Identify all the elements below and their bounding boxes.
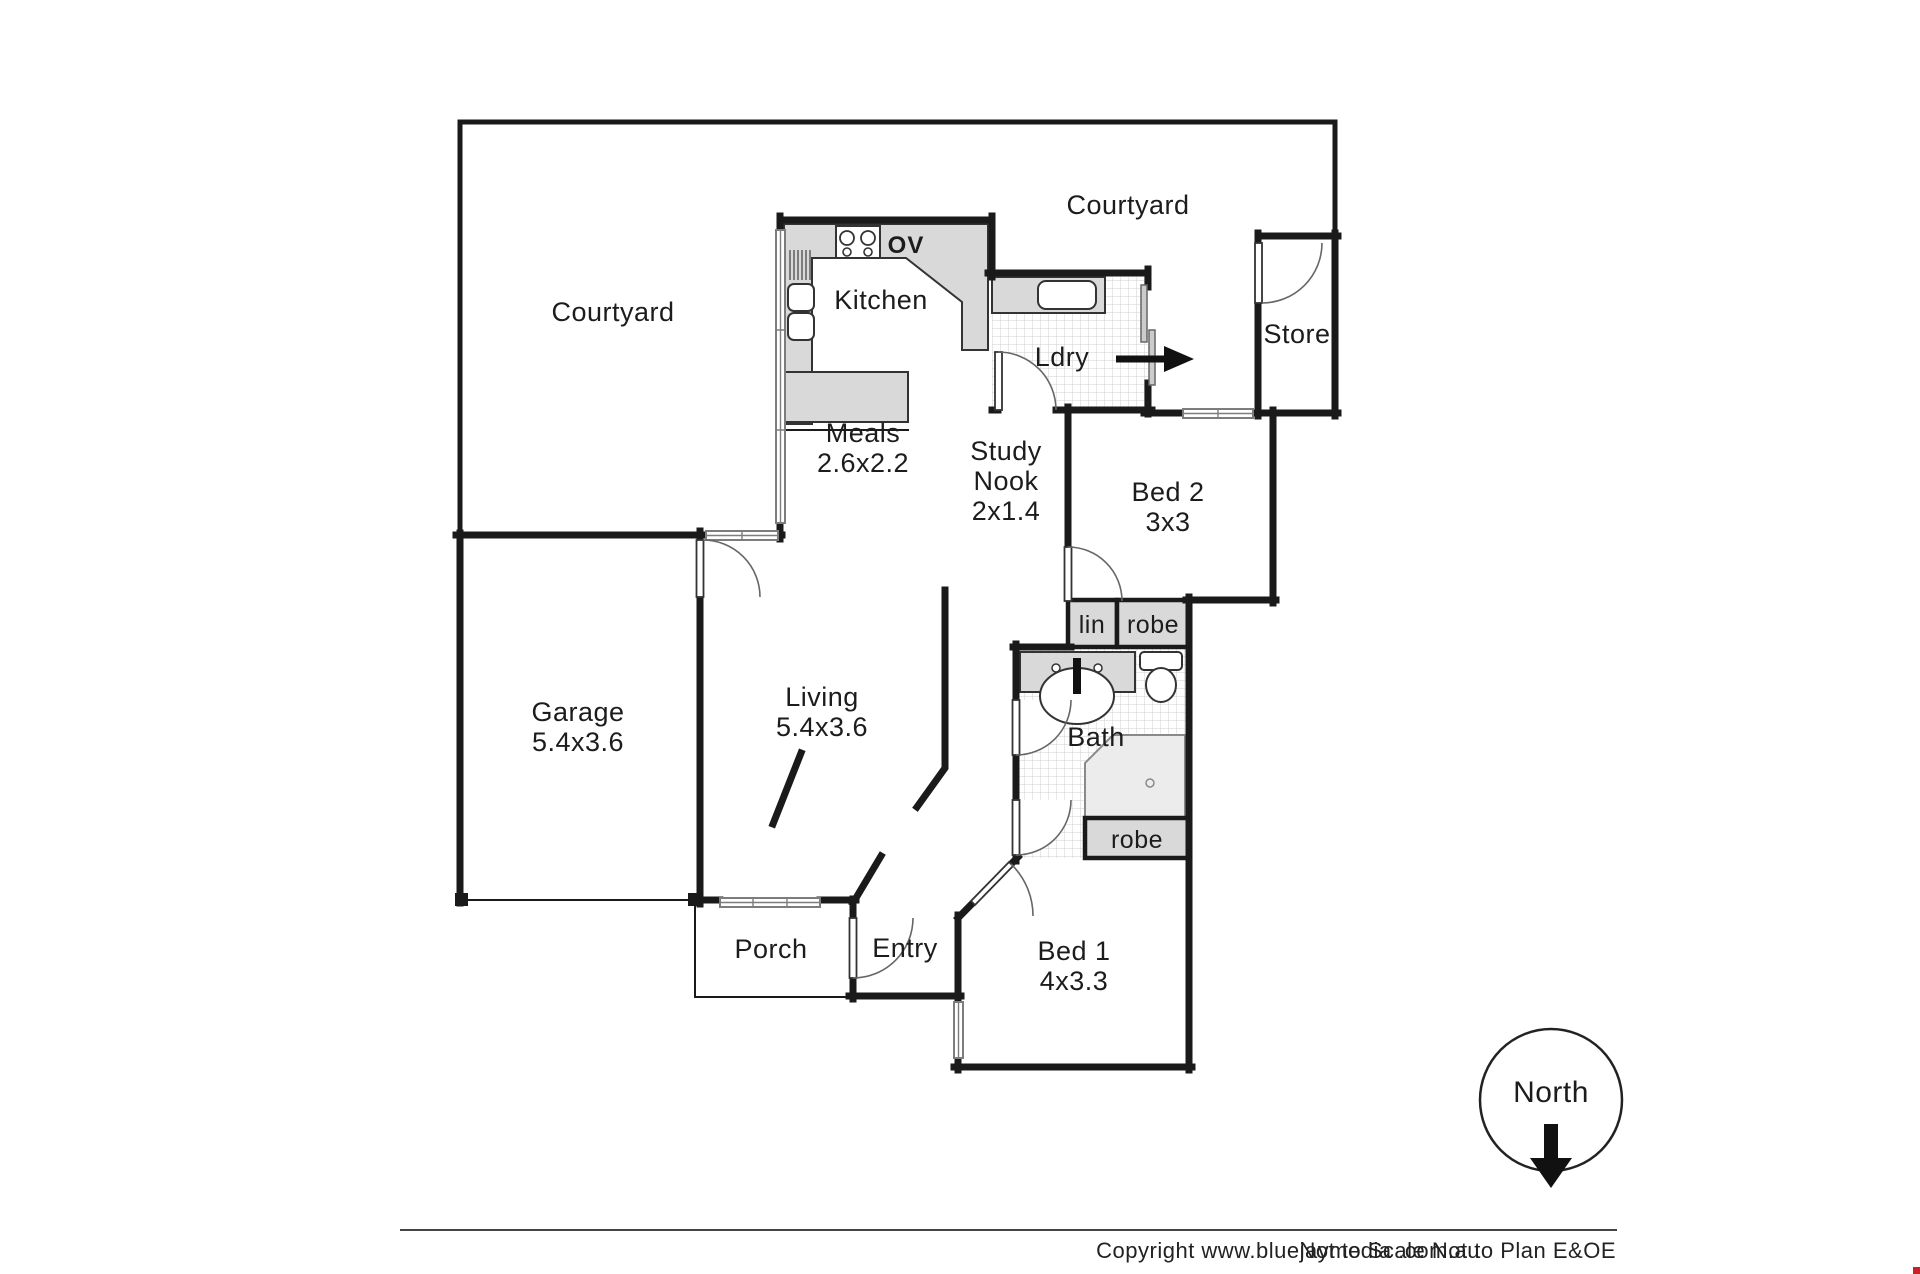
garage-living-door xyxy=(697,540,761,597)
garage-door-cap-left xyxy=(455,893,468,906)
room-label-bed1: Bed 1 xyxy=(1037,936,1110,966)
oven-label: OV xyxy=(888,232,925,259)
room-label-living: Living xyxy=(785,682,859,712)
bed1-door xyxy=(971,862,1033,916)
bed1-window xyxy=(954,1002,963,1058)
porch-window xyxy=(720,898,820,907)
room-dim-living: 5.4x3.6 xyxy=(776,712,868,742)
floor-plan: North Courtyard Courtyard Kitchen OV Ldr… xyxy=(0,0,1920,1274)
room-label-study-nook-2: Nook xyxy=(973,466,1038,496)
bed2-window xyxy=(1183,409,1253,418)
room-label-store: Store xyxy=(1263,319,1330,349)
room-dim-bed1: 4x3.3 xyxy=(1040,966,1109,996)
room-label-bath: Bath xyxy=(1067,722,1125,752)
room-dim-bed2: 3x3 xyxy=(1145,507,1190,537)
laundry-trough-icon xyxy=(1038,281,1096,309)
room-label-bed2: Bed 2 xyxy=(1131,477,1204,507)
living-courtyard-window xyxy=(706,531,778,540)
kitchen-island-bench xyxy=(784,372,908,422)
corner-red-mark xyxy=(1913,1267,1920,1274)
room-dim-meals: 2.6x2.2 xyxy=(817,448,909,478)
label-robe-bed1: robe xyxy=(1111,826,1163,854)
room-label-garage: Garage xyxy=(531,697,624,727)
label-robe-hall: robe xyxy=(1127,611,1179,639)
room-label-kitchen: Kitchen xyxy=(834,285,928,315)
room-label-laundry: Ldry xyxy=(1035,342,1090,372)
room-label-entry: Entry xyxy=(872,933,938,963)
label-linen: lin xyxy=(1079,611,1106,639)
compass-north-label: North xyxy=(1513,1076,1589,1109)
north-compass: North xyxy=(1480,1029,1622,1188)
room-dim-study-nook: 2x1.4 xyxy=(972,496,1041,526)
store-door xyxy=(1255,243,1322,303)
room-dim-garage: 5.4x3.6 xyxy=(532,727,624,757)
footer-disclaimer: Not to Scale Not to Plan E&OE xyxy=(1299,1238,1616,1263)
room-label-courtyard-left: Courtyard xyxy=(551,297,674,327)
meals-window xyxy=(776,230,785,523)
room-label-courtyard-right: Courtyard xyxy=(1066,190,1189,220)
bed2-door xyxy=(1065,547,1123,601)
room-label-meals: Meals xyxy=(826,418,901,448)
room-label-study-nook-1: Study xyxy=(970,436,1042,466)
floor-plan-svg: North Courtyard Courtyard Kitchen OV Ldr… xyxy=(0,0,1920,1274)
cooktop-icon xyxy=(836,226,880,258)
room-label-porch: Porch xyxy=(734,934,807,964)
